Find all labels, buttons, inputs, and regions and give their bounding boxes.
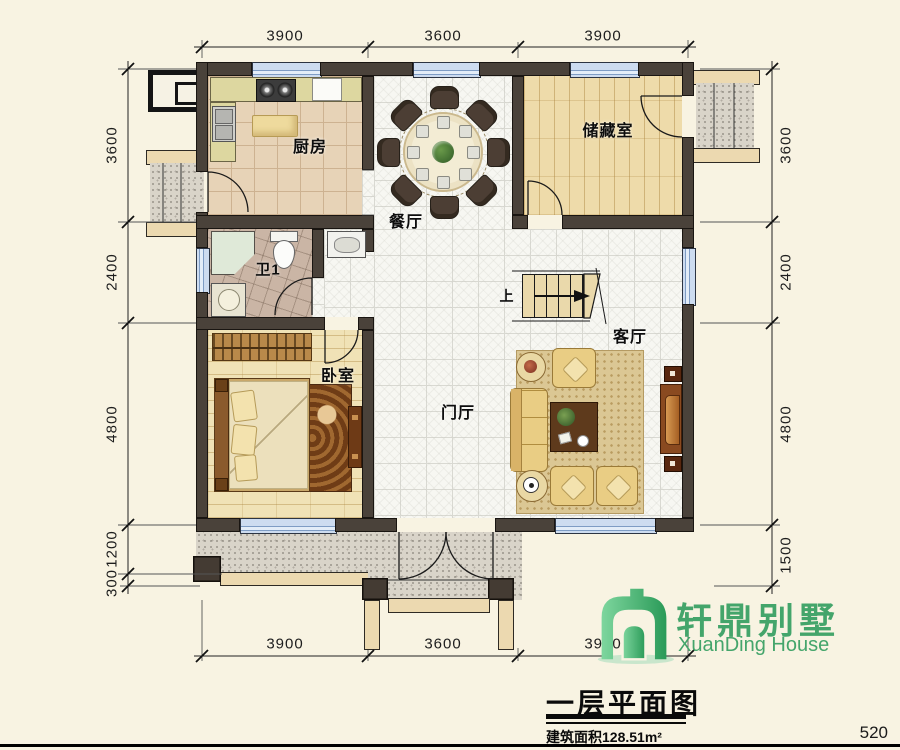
dim-right-4: 1500 [778, 536, 795, 573]
dining-chair [430, 196, 459, 219]
dining-window [413, 62, 481, 78]
place-setting [407, 146, 420, 159]
dim-bottom-2: 3600 [424, 636, 461, 653]
wall-right [682, 137, 694, 248]
side-table-plant [516, 352, 546, 382]
porch-column-left [362, 578, 388, 600]
centerpiece-plant-icon [432, 141, 454, 163]
dim-left-1: 3600 [104, 126, 121, 163]
place-setting [416, 168, 429, 181]
room-label-storage: 储藏室 [582, 117, 633, 141]
washbasin-icon [327, 231, 366, 258]
wardrobe-icon [212, 333, 312, 361]
title-underline-thick [546, 714, 686, 719]
bedroom-window [240, 518, 337, 534]
living-window [682, 248, 696, 306]
title-underline-thin [546, 722, 686, 724]
storage-floor [524, 76, 682, 215]
pillow [234, 454, 258, 482]
dim-bottom-1: 3900 [266, 636, 303, 653]
dim-right-2: 2400 [778, 253, 795, 290]
dim-top-1: 3900 [266, 28, 303, 45]
place-setting [437, 176, 450, 189]
sheet-number: 520 [860, 723, 888, 743]
stove-icon [256, 79, 296, 102]
kitchen-passage-floor [362, 170, 374, 215]
wall-storage-south [562, 215, 694, 229]
wall-bathroom-east [312, 229, 324, 278]
headboard [215, 379, 229, 491]
place-setting [467, 146, 480, 159]
porch-post-left-base [364, 600, 380, 650]
wall-bottom [495, 518, 555, 532]
wall-bottom [196, 518, 240, 532]
logo: 轩鼎别墅 XuanDing House [594, 582, 894, 666]
terrace-slab [196, 532, 368, 574]
corridor-floor-2 [312, 278, 324, 317]
speaker-icon [664, 456, 682, 472]
terrace-corner-post [193, 556, 221, 582]
wall-right [682, 304, 694, 518]
dim-left-4: 1200 [104, 530, 121, 567]
dim-right-3: 4800 [778, 405, 795, 442]
wall-kitchen-dining [362, 76, 374, 170]
stairs [522, 274, 584, 318]
stairs-up-label: 上 [500, 286, 515, 306]
side-table-round [516, 470, 548, 502]
bedpost [215, 478, 228, 491]
porch-column-right [488, 578, 514, 600]
room-label-hall: 门厅 [441, 399, 475, 423]
washer-icon [211, 283, 246, 317]
dim-left-3: 4800 [104, 405, 121, 442]
wall-bottom [655, 518, 694, 532]
dining-chair [377, 138, 400, 167]
coffee-table [550, 402, 598, 452]
wall-bedroom-north [196, 317, 325, 330]
place-setting [416, 125, 429, 138]
bedpost [215, 379, 228, 392]
storage-window [570, 62, 640, 78]
bathroom-window [196, 248, 210, 294]
side-steps-right-bottom [692, 148, 760, 163]
wall-left [196, 62, 208, 172]
armchair [596, 466, 638, 506]
dim-left-2: 2400 [104, 253, 121, 290]
speaker-icon [664, 366, 682, 382]
sofa [510, 388, 548, 472]
wall-bedroom-north [358, 317, 374, 330]
kitchen-island [252, 115, 298, 137]
sink-icon [212, 106, 236, 142]
kitchen-window [252, 62, 322, 78]
dining-chair [487, 138, 510, 167]
pillow [230, 389, 258, 422]
logo-house-icon [594, 584, 674, 666]
room-label-bedroom: 卧室 [321, 362, 355, 386]
porch-post-right-base [498, 600, 514, 650]
porch-step-band [388, 598, 490, 613]
bedroom-cabinet [348, 406, 362, 468]
wall-bedroom-east [362, 330, 374, 518]
tv-cabinet [660, 384, 682, 454]
wall-right [682, 62, 694, 96]
bed [214, 378, 310, 492]
wall-bottom [335, 518, 397, 532]
wall-top [479, 62, 570, 76]
dim-top-3: 3900 [584, 28, 621, 45]
living-south-window [555, 518, 657, 534]
sheet-bottom-border [0, 744, 900, 747]
place-setting [459, 168, 472, 181]
side-steps-right [696, 83, 754, 148]
pillow [230, 424, 257, 456]
armchair [552, 348, 596, 388]
room-label-dining: 餐厅 [389, 208, 423, 232]
place-setting [459, 125, 472, 138]
wall-storage-west [512, 76, 524, 215]
floor-plan-sheet: 3900 3600 3900 3900 3600 3900 3600 2400 … [0, 0, 900, 750]
room-label-kitchen: 厨房 [293, 133, 327, 157]
wall-storage-south [512, 215, 528, 229]
fridge-icon [312, 78, 342, 101]
dining-chair [430, 86, 459, 109]
wall-top [320, 62, 413, 76]
room-label-living: 客厅 [613, 323, 647, 347]
dim-right-1: 3600 [778, 126, 795, 163]
place-setting [437, 116, 450, 129]
dim-left-5: 300 [104, 569, 121, 597]
dim-top-2: 3600 [424, 28, 461, 45]
armchair [550, 466, 594, 506]
wall-kitchen-south [196, 215, 374, 229]
logo-name-en: XuanDing House [678, 634, 829, 657]
terrace-railing [220, 572, 370, 586]
room-label-bath: 卫1 [255, 259, 280, 280]
